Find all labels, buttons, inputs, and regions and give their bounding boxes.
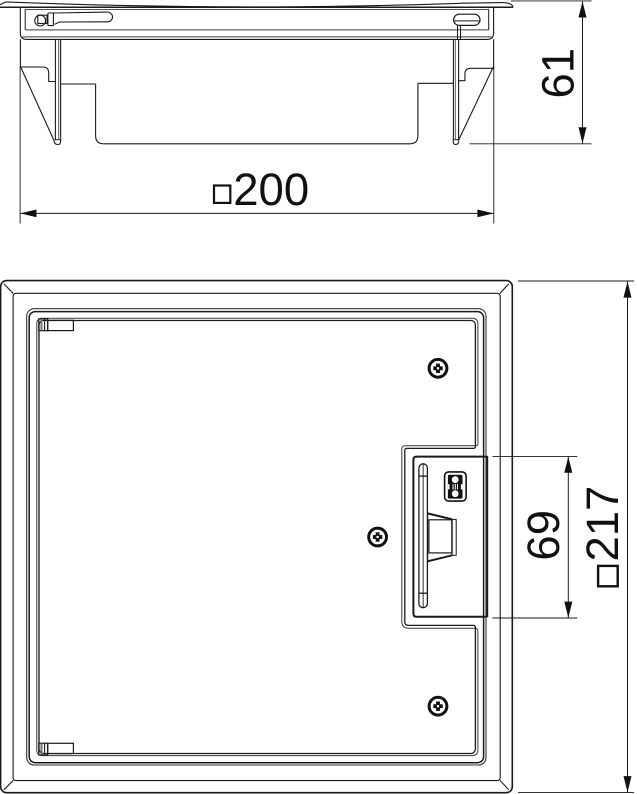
svg-text:217: 217 [577, 486, 628, 562]
svg-text:69: 69 [518, 510, 569, 561]
svg-text:61: 61 [533, 48, 584, 99]
svg-text:200: 200 [233, 164, 309, 215]
